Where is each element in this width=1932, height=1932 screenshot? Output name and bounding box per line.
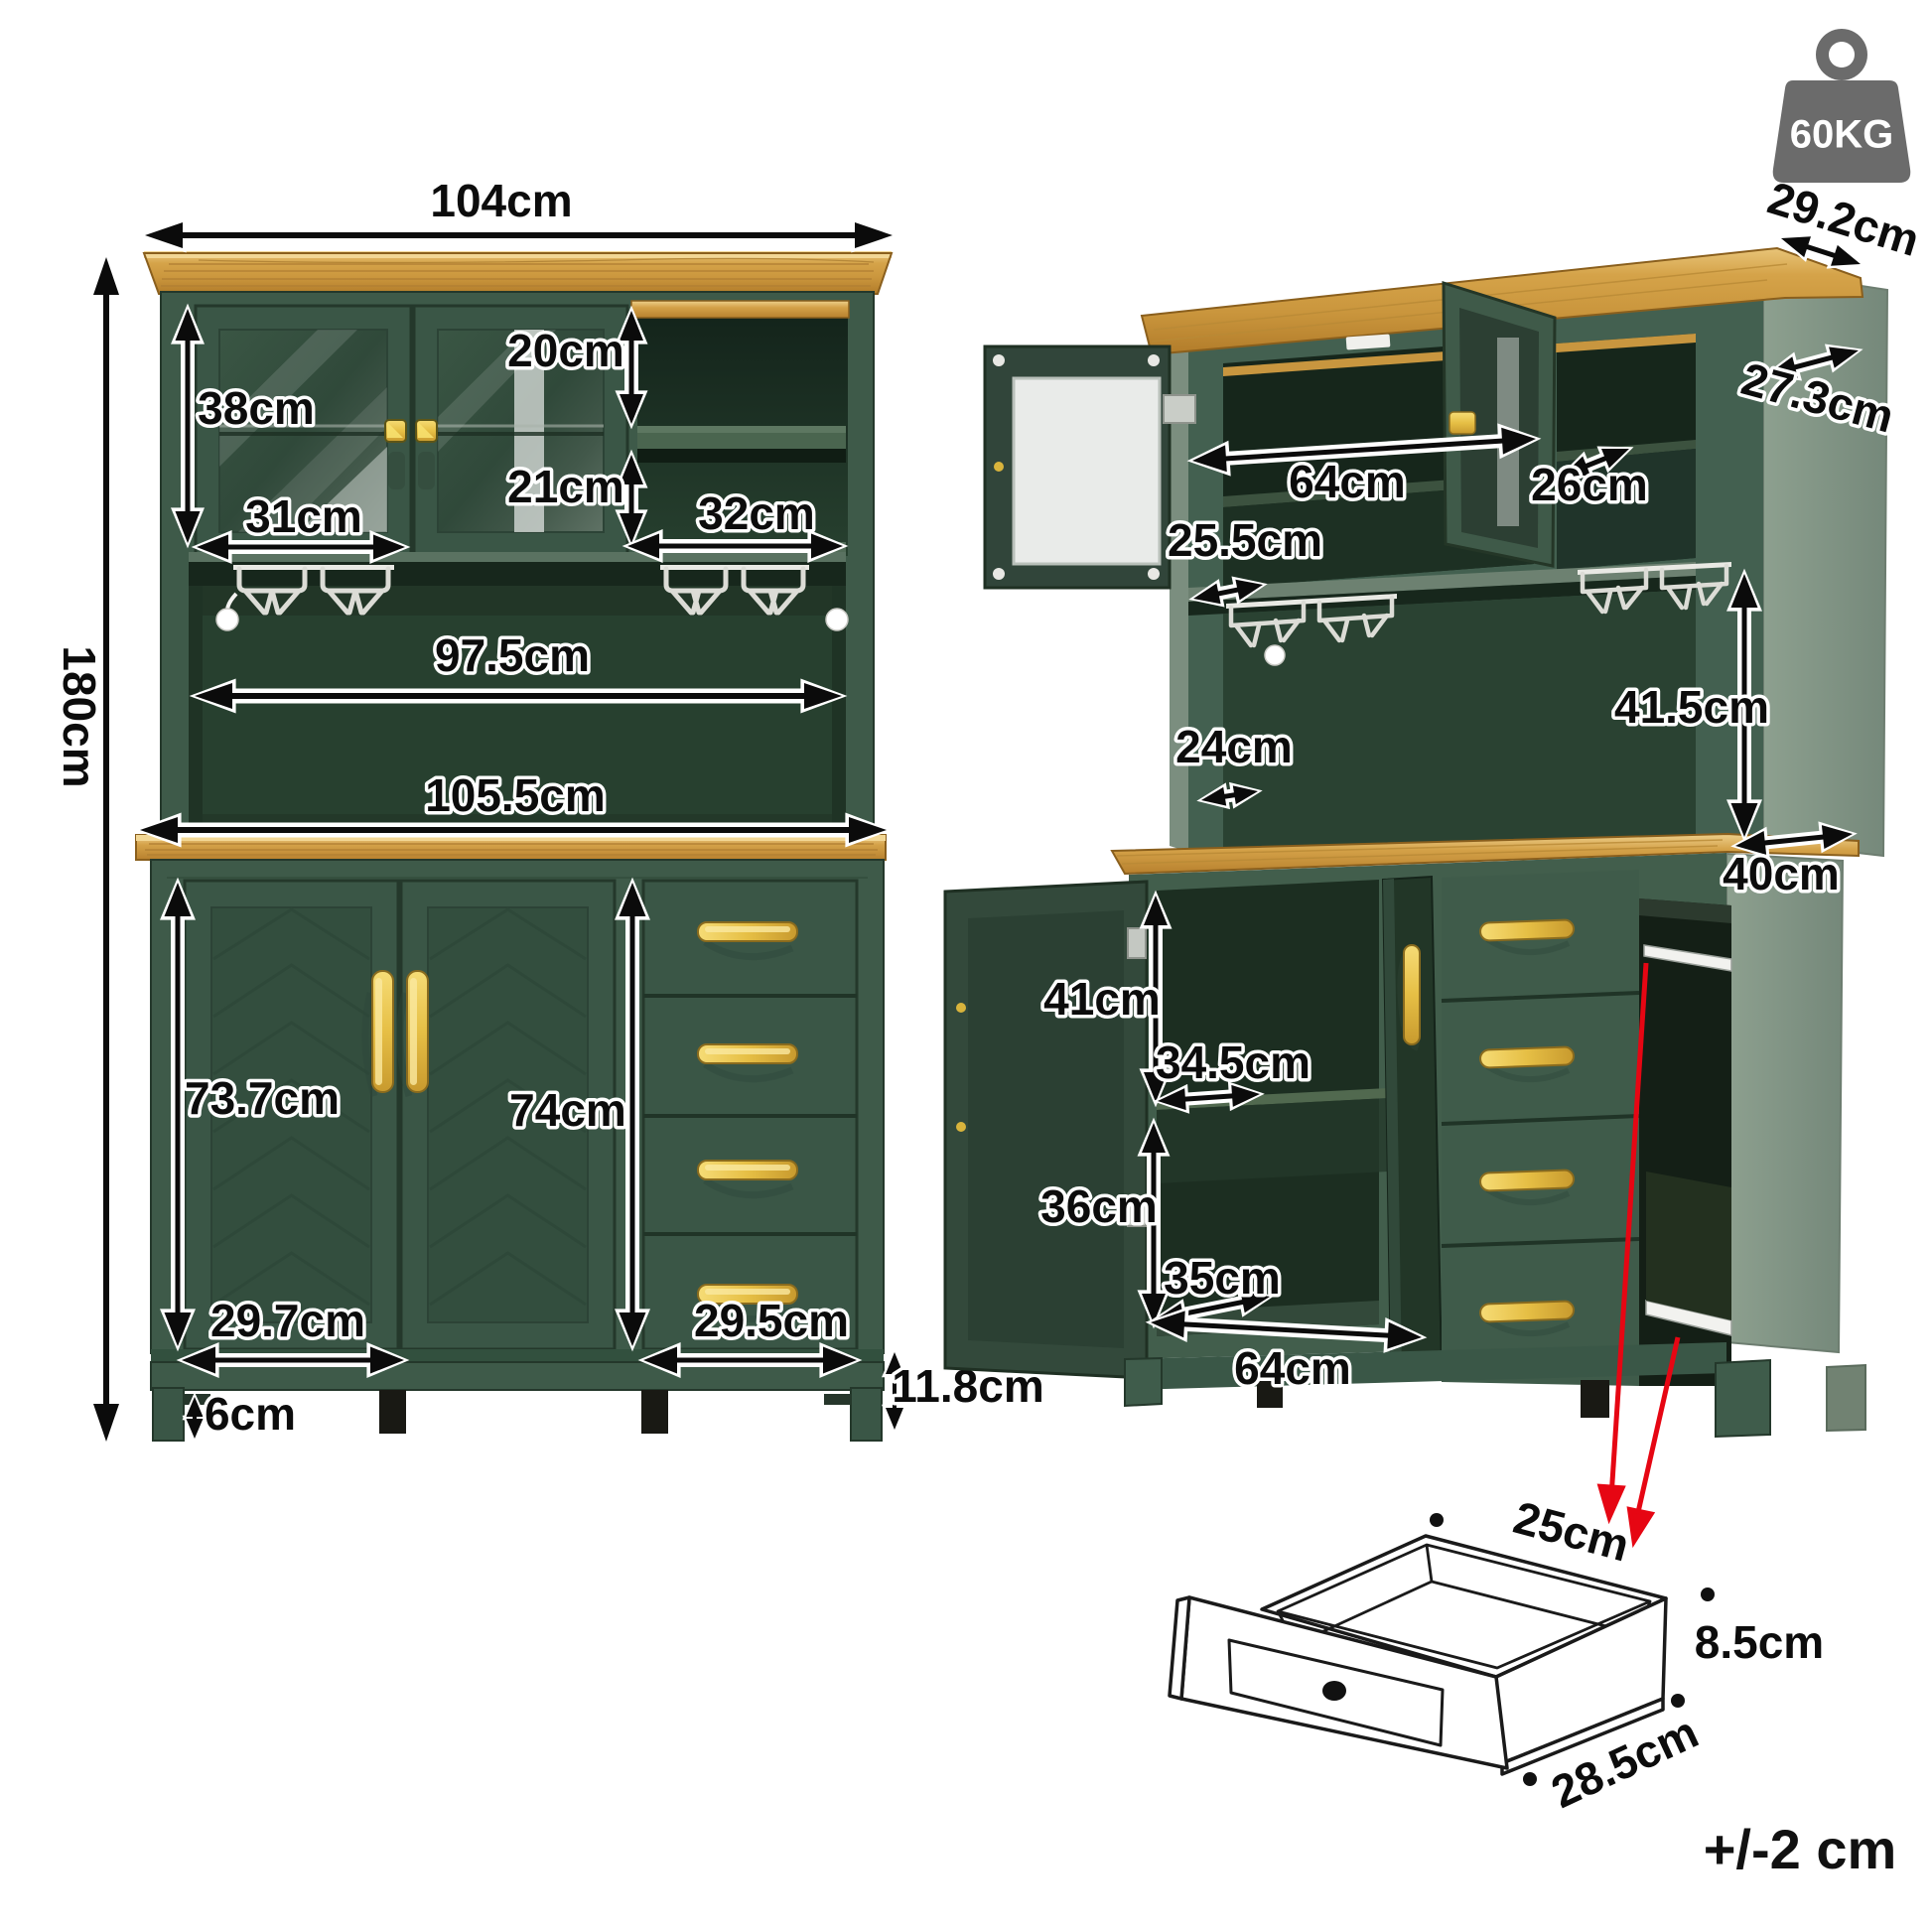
svg-text:104cm: 104cm xyxy=(430,175,572,226)
svg-text:29.7cm: 29.7cm xyxy=(210,1295,365,1346)
svg-text:41cm: 41cm xyxy=(1043,973,1161,1025)
svg-text:32cm: 32cm xyxy=(698,487,815,539)
svg-text:74cm: 74cm xyxy=(509,1084,626,1136)
svg-text:8.5cm: 8.5cm xyxy=(1695,1616,1824,1668)
svg-text:73.7cm: 73.7cm xyxy=(185,1072,340,1124)
svg-text:40cm: 40cm xyxy=(1723,848,1840,899)
svg-text:64cm: 64cm xyxy=(1234,1342,1351,1394)
svg-text:6cm: 6cm xyxy=(205,1388,296,1440)
svg-text:64cm: 64cm xyxy=(1289,456,1406,507)
svg-text:41.5cm: 41.5cm xyxy=(1614,681,1769,733)
svg-text:35cm: 35cm xyxy=(1164,1252,1281,1304)
svg-text:29.5cm: 29.5cm xyxy=(694,1295,849,1346)
svg-text:21cm: 21cm xyxy=(507,461,624,512)
svg-text:26cm: 26cm xyxy=(1531,459,1648,510)
svg-text:105.5cm: 105.5cm xyxy=(425,769,606,821)
svg-text:+/-2 cm: +/-2 cm xyxy=(1704,1818,1897,1880)
svg-text:24cm: 24cm xyxy=(1175,721,1293,772)
svg-text:60KG: 60KG xyxy=(1790,113,1894,157)
svg-text:20cm: 20cm xyxy=(507,325,624,376)
svg-text:38cm: 38cm xyxy=(198,382,315,434)
svg-text:34.5cm: 34.5cm xyxy=(1156,1036,1311,1088)
svg-text:25.5cm: 25.5cm xyxy=(1168,514,1322,566)
svg-text:36cm: 36cm xyxy=(1040,1180,1158,1232)
svg-text:31cm: 31cm xyxy=(245,490,362,542)
svg-text:180cm: 180cm xyxy=(54,645,105,787)
svg-text:97.5cm: 97.5cm xyxy=(435,629,590,681)
